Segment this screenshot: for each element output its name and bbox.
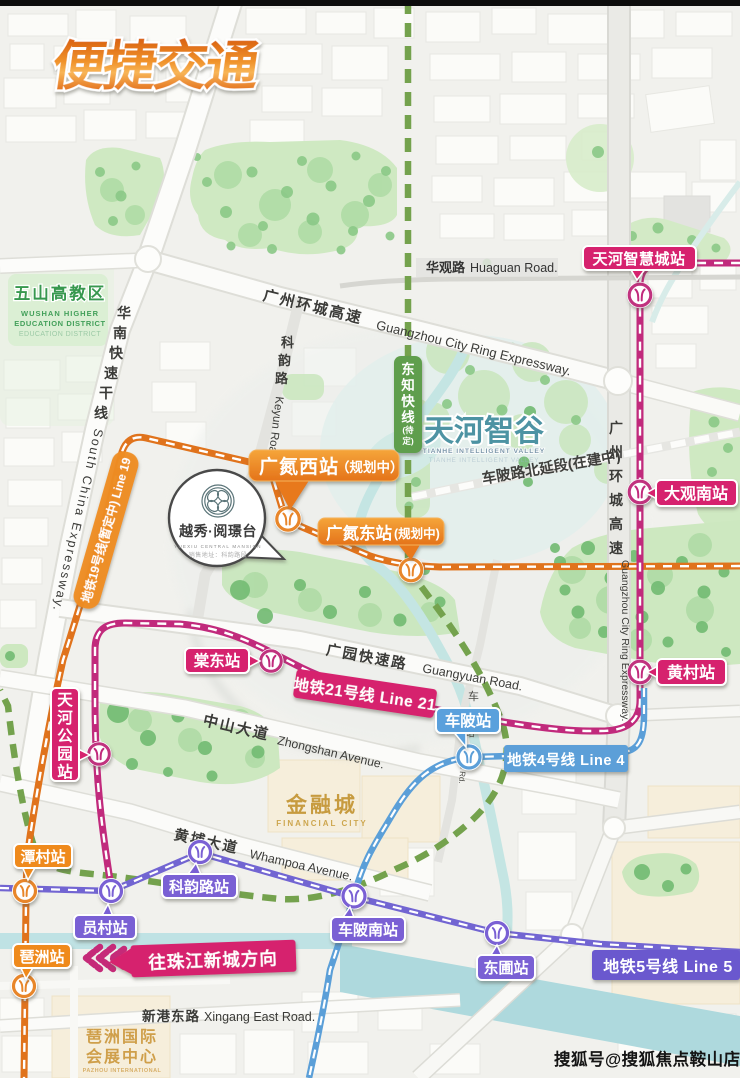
svg-text:琶洲国际: 琶洲国际 — [86, 1028, 158, 1046]
svg-text:大观南站: 大观南站 — [664, 484, 728, 503]
svg-text:FINANCIAL CITY: FINANCIAL CITY — [276, 819, 367, 828]
svg-text:五山高教区: 五山高教区 — [14, 283, 107, 303]
svg-text:潭村站: 潭村站 — [20, 848, 65, 866]
svg-text:快: 快 — [401, 393, 415, 409]
svg-text:PAZHOU INTERNATIONAL: PAZHOU INTERNATIONAL — [83, 1068, 162, 1074]
svg-text:快: 快 — [109, 345, 124, 361]
svg-text:东: 东 — [401, 361, 415, 377]
svg-text:路: 路 — [275, 371, 289, 386]
svg-text:越秀·阅璟台: 越秀·阅璟台 — [178, 523, 257, 539]
svg-text:销售地址：科韵路段: 销售地址：科韵路段 — [189, 551, 248, 559]
svg-text:华观路: 华观路 — [426, 260, 466, 275]
svg-text:广氮西站: 广氮西站 — [259, 455, 339, 478]
svg-text:广氮东站: 广氮东站 — [326, 523, 393, 543]
svg-text:公: 公 — [57, 727, 73, 745]
svg-text:琶洲站: 琶洲站 — [19, 948, 64, 966]
svg-text:车陂南站: 车陂南站 — [338, 921, 398, 939]
svg-text:EDUCATION DISTRICT: EDUCATION DISTRICT — [19, 331, 101, 338]
svg-text:Xingang East Road.: Xingang East Road. — [204, 1010, 315, 1024]
svg-text:广: 广 — [609, 420, 623, 436]
svg-text:华: 华 — [117, 305, 131, 321]
svg-text:TIANHE INTELLIGENT VALLEY: TIANHE INTELLIGENT VALLEY — [429, 457, 539, 464]
svg-text:环: 环 — [609, 468, 623, 484]
svg-text:干: 干 — [99, 385, 113, 401]
svg-text:速: 速 — [609, 540, 623, 556]
svg-text:天河智慧城站: 天河智慧城站 — [592, 250, 685, 268]
svg-text:Guangzhou City Ring Expressway: Guangzhou City Ring Expressway. — [619, 560, 631, 721]
svg-text:TIANHE INTELLIGENT VALLEY: TIANHE INTELLIGENT VALLEY — [423, 448, 545, 455]
svg-text:线: 线 — [401, 409, 415, 425]
svg-text:定): 定) — [401, 436, 414, 446]
svg-text:金融城: 金融城 — [285, 793, 358, 817]
svg-text:天河智谷: 天河智谷 — [424, 415, 544, 448]
svg-text:便捷交通: 便捷交通 — [49, 37, 263, 96]
svg-text:（规划中）: （规划中） — [336, 459, 404, 475]
svg-text:园: 园 — [57, 745, 73, 763]
svg-text:车: 车 — [468, 689, 479, 703]
svg-text:EDUCATION DISTRICT: EDUCATION DISTRICT — [14, 319, 106, 328]
svg-text:YUEXIU CENTRAL MANSION: YUEXIU CENTRAL MANSION — [174, 544, 262, 549]
svg-text:高: 高 — [609, 516, 623, 532]
svg-text:速: 速 — [104, 365, 118, 381]
svg-text:(待: (待 — [402, 425, 414, 435]
svg-text:棠东站: 棠东站 — [193, 651, 241, 670]
svg-text:河: 河 — [57, 708, 73, 727]
svg-text:线: 线 — [94, 405, 108, 421]
svg-text:天: 天 — [57, 692, 73, 709]
svg-text:车陂站: 车陂站 — [445, 711, 492, 730]
svg-text:科: 科 — [281, 335, 294, 350]
svg-text:地铁4号线 Line 4: 地铁4号线 Line 4 — [507, 751, 625, 769]
svg-text:南: 南 — [113, 325, 127, 341]
svg-text:城: 城 — [609, 492, 623, 508]
svg-text:知: 知 — [401, 377, 415, 393]
svg-text:站: 站 — [57, 762, 73, 781]
svg-text:(规划中): (规划中) — [394, 526, 440, 541]
svg-text:会展中心: 会展中心 — [86, 1047, 158, 1066]
svg-text:科韵路站: 科韵路站 — [169, 878, 229, 896]
svg-text:WUSHAN HIGHER: WUSHAN HIGHER — [21, 309, 99, 318]
svg-text:韵: 韵 — [278, 353, 291, 368]
svg-text:东圃站: 东圃站 — [483, 959, 528, 977]
svg-text:地铁5号线 Line 5: 地铁5号线 Line 5 — [603, 957, 733, 976]
svg-text:搜狐号@搜狐焦点鞍山店: 搜狐号@搜狐焦点鞍山店 — [554, 1049, 740, 1069]
svg-text:黄村站: 黄村站 — [667, 663, 715, 682]
svg-text:员村站: 员村站 — [82, 919, 127, 937]
svg-text:新港东路: 新港东路 — [142, 1008, 200, 1024]
svg-text:Huaguan Road.: Huaguan Road. — [470, 261, 558, 275]
